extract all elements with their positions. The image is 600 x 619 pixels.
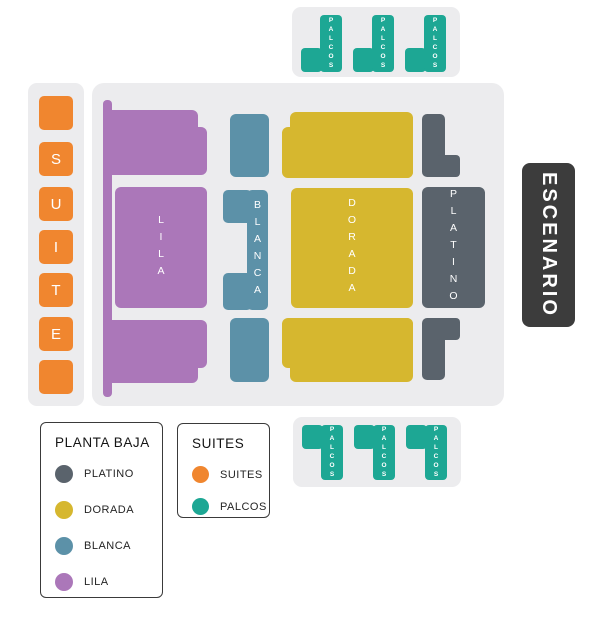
main-floor-panel: LILA BLANCA DORADA PLATINO — [92, 83, 504, 406]
section-platino-bottom-foot[interactable] — [436, 318, 460, 340]
section-lila-main[interactable] — [115, 187, 207, 308]
section-blanca-lower-wing[interactable] — [223, 273, 252, 310]
suite-box-5[interactable]: T — [39, 273, 73, 307]
suite-letter: E — [51, 326, 61, 343]
section-blanca-top-block[interactable] — [230, 114, 269, 177]
legend-planta-baja-title: PLANTA BAJA — [55, 435, 154, 450]
stage-label: ESCENARIO — [537, 172, 560, 318]
section-blanca-upper-wing[interactable] — [223, 190, 252, 223]
palco-top-2-bar[interactable] — [372, 15, 394, 72]
legend-item-suites: SUITES — [192, 466, 261, 483]
palco-top-2-foot[interactable] — [353, 48, 374, 72]
suite-box-1[interactable] — [39, 96, 73, 130]
legend-item-blanca: BLANCA — [55, 537, 154, 555]
stage: ESCENARIO — [522, 163, 575, 327]
section-dorada-top-block-ext[interactable] — [282, 127, 413, 178]
suite-box-4[interactable]: I — [39, 230, 73, 264]
palco-bottom-2-foot[interactable] — [354, 425, 375, 449]
suite-letter: S — [51, 151, 61, 168]
suite-box-7[interactable] — [39, 360, 73, 394]
palco-top-1-foot[interactable] — [301, 48, 322, 72]
palco-bottom-1-bar[interactable] — [321, 425, 343, 480]
blanca-swatch-icon — [55, 537, 73, 555]
suite-panel: S U I T E — [28, 83, 84, 406]
lila-swatch-icon — [55, 573, 73, 591]
palco-top-3-foot[interactable] — [405, 48, 426, 72]
palco-bottom-2-bar[interactable] — [373, 425, 395, 480]
section-platino-main[interactable] — [422, 187, 485, 308]
section-lila-bottom-block-ext[interactable] — [103, 320, 207, 368]
section-blanca-bottom-block[interactable] — [230, 318, 269, 382]
platino-swatch-icon — [55, 465, 73, 483]
palco-top-3-bar[interactable] — [424, 15, 446, 72]
legend-planta-baja: PLANTA BAJA PLATINO DORADA BLANCA LILA — [40, 422, 163, 598]
palco-bottom-1[interactable]: PALCOS — [302, 425, 343, 480]
bottom-palcos-panel: PALCOS PALCOS PALCOS — [293, 417, 461, 487]
palco-bottom-3-bar[interactable] — [425, 425, 447, 480]
section-dorada-main[interactable] — [291, 188, 413, 308]
legend-suites-title: SUITES — [192, 436, 261, 451]
palco-top-2[interactable]: PALCOS — [353, 15, 394, 72]
suite-letter: T — [51, 282, 60, 299]
legend-item-label: SUITES — [220, 469, 263, 481]
legend-item-label: PLATINO — [84, 468, 134, 480]
legend-item-palcos: PALCOS — [192, 498, 261, 515]
legend-item-label: LILA — [84, 576, 109, 588]
legend-item-lila: LILA — [55, 573, 154, 591]
suite-letter: U — [51, 196, 62, 213]
palco-bottom-3-foot[interactable] — [406, 425, 427, 449]
suites-swatch-icon — [192, 466, 209, 483]
palco-top-1-bar[interactable] — [320, 15, 342, 72]
suite-letter: I — [54, 239, 58, 256]
dorada-swatch-icon — [55, 501, 73, 519]
section-platino-top-foot[interactable] — [436, 155, 460, 177]
suite-box-3[interactable]: U — [39, 187, 73, 221]
palco-top-3[interactable]: PALCOS — [405, 15, 446, 72]
section-dorada-bottom-block-ext[interactable] — [282, 318, 413, 368]
seating-map: PALCOS PALCOS PALCOS S U I T E LILA — [0, 0, 600, 619]
legend-item-platino: PLATINO — [55, 465, 154, 483]
legend-item-label: DORADA — [84, 504, 134, 516]
legend-item-dorada: DORADA — [55, 501, 154, 519]
suite-box-2[interactable]: S — [39, 142, 73, 176]
palco-bottom-1-foot[interactable] — [302, 425, 323, 449]
suite-box-6[interactable]: E — [39, 317, 73, 351]
legend-item-label: PALCOS — [220, 501, 267, 513]
palco-bottom-2[interactable]: PALCOS — [354, 425, 395, 480]
legend-item-label: BLANCA — [84, 540, 131, 552]
palcos-swatch-icon — [192, 498, 209, 515]
section-lila-top-block-ext[interactable] — [103, 127, 207, 175]
palco-top-1[interactable]: PALCOS — [301, 15, 342, 72]
top-palcos-panel: PALCOS PALCOS PALCOS — [292, 7, 460, 77]
legend-suites: SUITES SUITES PALCOS — [177, 423, 270, 518]
palco-bottom-3[interactable]: PALCOS — [406, 425, 447, 480]
